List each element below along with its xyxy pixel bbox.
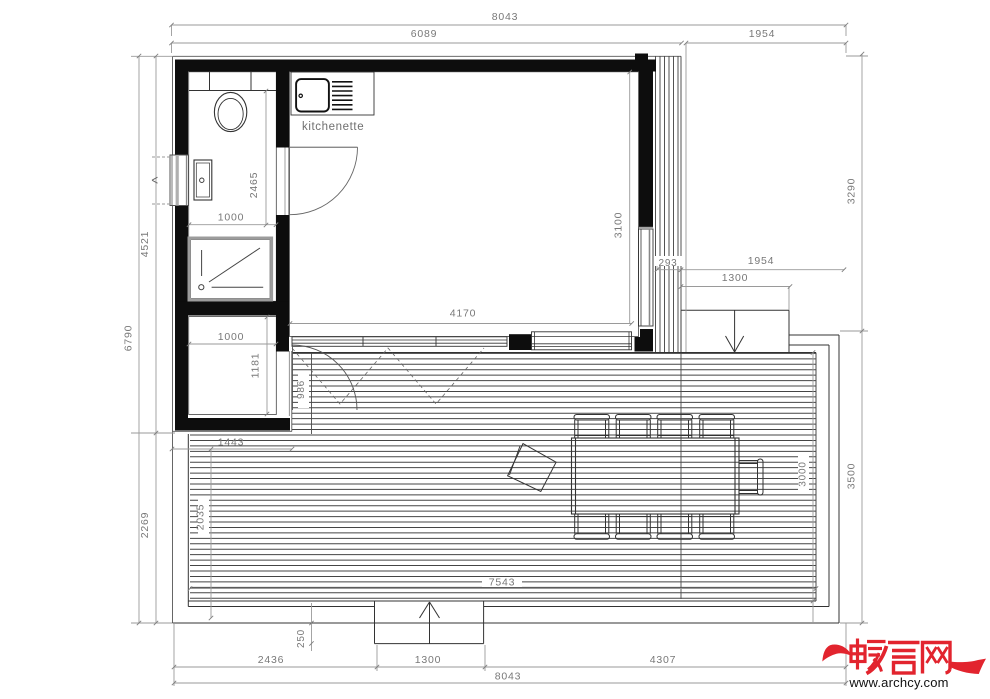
svg-text:1443: 1443 xyxy=(218,437,245,449)
svg-text:7543: 7543 xyxy=(489,577,516,589)
svg-text:3100: 3100 xyxy=(613,212,625,239)
svg-text:www.archcy.com: www.archcy.com xyxy=(848,675,948,690)
svg-text:1954: 1954 xyxy=(748,255,775,267)
svg-text:6089: 6089 xyxy=(411,28,438,40)
svg-text:3290: 3290 xyxy=(846,178,858,205)
svg-text:1181: 1181 xyxy=(250,353,262,379)
svg-text:4521: 4521 xyxy=(139,231,151,258)
svg-text:2465: 2465 xyxy=(248,172,260,199)
svg-text:2269: 2269 xyxy=(139,512,151,539)
svg-text:kitchenette: kitchenette xyxy=(302,121,364,133)
svg-text:4307: 4307 xyxy=(650,654,677,666)
svg-text:2436: 2436 xyxy=(258,654,285,666)
svg-text:6790: 6790 xyxy=(123,325,135,352)
svg-text:293: 293 xyxy=(658,258,677,269)
svg-text:1300: 1300 xyxy=(722,272,749,284)
svg-text:1000: 1000 xyxy=(218,212,245,224)
svg-text:986: 986 xyxy=(296,380,307,399)
svg-text:1954: 1954 xyxy=(749,28,776,40)
svg-text:3000: 3000 xyxy=(798,461,809,486)
svg-text:4170: 4170 xyxy=(450,308,477,320)
svg-text:8043: 8043 xyxy=(492,11,519,23)
svg-text:3500: 3500 xyxy=(846,463,858,490)
svg-text:250: 250 xyxy=(296,629,307,648)
svg-text:8043: 8043 xyxy=(495,671,522,683)
svg-text:1300: 1300 xyxy=(415,654,442,666)
svg-text:2035: 2035 xyxy=(195,504,207,531)
svg-text:1000: 1000 xyxy=(218,331,245,343)
